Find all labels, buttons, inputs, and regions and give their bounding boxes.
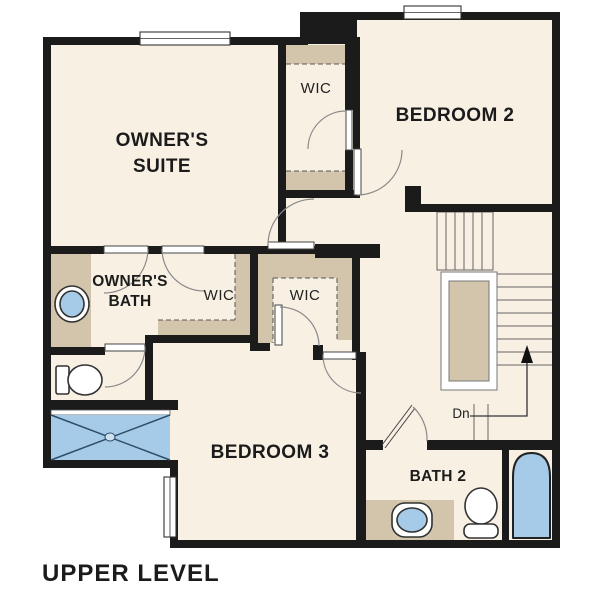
- bedroom3-label: BEDROOM 3: [211, 442, 330, 463]
- floor-plan: OWNER'S SUITE BEDROOM 2 WIC OWNER'S BATH…: [0, 0, 600, 600]
- stair-well-wall: [449, 281, 489, 381]
- owners-suite-label-2: SUITE: [133, 156, 191, 177]
- sink-bath2-icon: [392, 503, 432, 537]
- owners-bath-label-2: BATH: [108, 293, 151, 310]
- door-wic-hall: [275, 305, 282, 345]
- door-wic-top: [346, 110, 352, 150]
- wic-hall-label: WIC: [290, 287, 321, 304]
- sink-owners-icon: [55, 286, 89, 322]
- bathtub-icon: [513, 453, 550, 538]
- shower-icon: [51, 410, 170, 460]
- plan-title: UPPER LEVEL: [42, 560, 220, 587]
- ext-wall-shower-bottom: [43, 460, 178, 468]
- wic-hall-shelf-right: [337, 278, 352, 340]
- wic-hall-shelf-left: [258, 278, 273, 343]
- door-toilet-room: [105, 344, 145, 351]
- toilet-owners-icon: [56, 365, 102, 395]
- toilet-bath2-icon: [464, 488, 498, 538]
- stairs-dn-label: Dn: [452, 406, 469, 421]
- wic-top-shelf-lower: [286, 171, 345, 190]
- door-wic-owners: [162, 246, 204, 253]
- door-owners-bath: [104, 246, 148, 253]
- wic-top-label: WIC: [301, 80, 332, 97]
- owners-bath-label-1: OWNER'S: [92, 273, 168, 290]
- bedroom2-label: BEDROOM 2: [396, 105, 515, 126]
- ext-wall-right: [552, 12, 560, 548]
- door-bedroom2: [354, 149, 361, 195]
- bath2-label: BATH 2: [410, 468, 467, 485]
- wic-owners-label: WIC: [204, 287, 235, 304]
- wic-top-shelf-upper: [286, 45, 345, 64]
- door-owners-suite: [268, 242, 314, 249]
- door-bedroom3: [323, 352, 356, 359]
- owners-suite-label-1: OWNER'S: [116, 130, 209, 151]
- floor-plan-canvas: OWNER'S SUITE BEDROOM 2 WIC OWNER'S BATH…: [0, 0, 600, 600]
- wic-owners-shelf-bottom: [158, 320, 250, 335]
